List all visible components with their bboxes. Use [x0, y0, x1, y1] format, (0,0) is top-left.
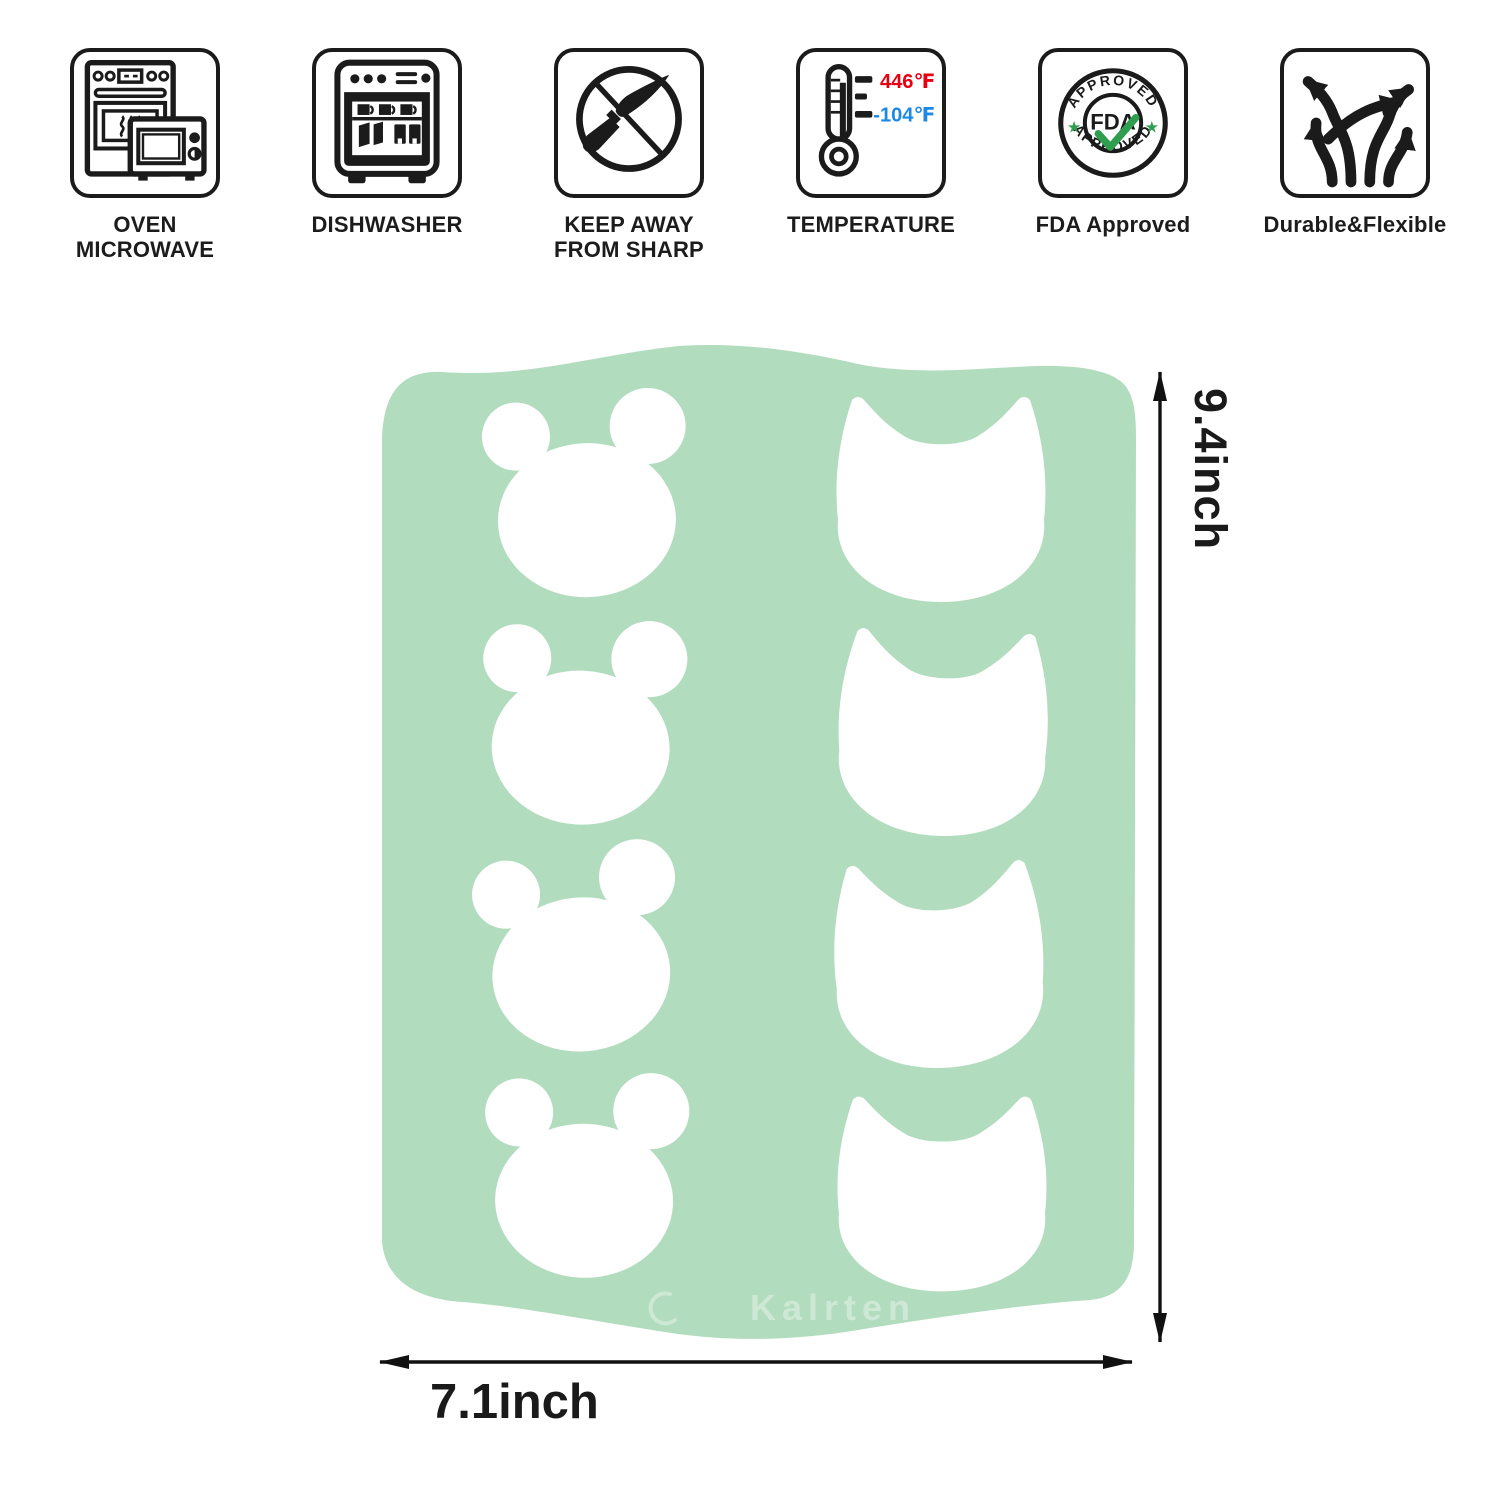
height-dimension-label: 9.4inch [1184, 388, 1236, 550]
feature-label-keep-away-sharp: KEEP AWAY FROM SHARP [504, 212, 754, 262]
oven-microwave-icon [78, 56, 212, 190]
width-dimension-label: 7.1inch [430, 1374, 599, 1430]
fda-badge-icon-box: APPROVED APPROVED ★ ★ FDA [1038, 48, 1188, 198]
svg-text:APPROVED: APPROVED [1064, 72, 1163, 111]
feature-label-oven-microwave: OVEN MICROWAVE [20, 212, 270, 262]
mat-watermark-text: Kalrten [750, 1287, 916, 1328]
flexible-arrows-icon-box [1280, 48, 1430, 198]
feature-keep-away-sharp: KEEP AWAY FROM SHARP [550, 48, 708, 262]
thermometer-icon-box: 446℉ -104℉ [796, 48, 946, 198]
feature-oven-microwave: OVEN MICROWAVE [66, 48, 224, 262]
feature-strip: OVEN MICROWAVE [0, 48, 1500, 262]
product-infographic: OVEN MICROWAVE [0, 0, 1500, 1500]
feature-fda-approved: APPROVED APPROVED ★ ★ FDA FDA Approved [1034, 48, 1192, 262]
feature-label-durable-flexible: Durable&Flexible [1230, 212, 1480, 237]
feature-durable-flexible: Durable&Flexible [1276, 48, 1434, 262]
feature-label-temperature: TEMPERATURE [746, 212, 996, 237]
dishwasher-icon-box [312, 48, 462, 198]
silicone-mat: Kalrten [378, 342, 1138, 1342]
feature-dishwasher: DISHWASHER [308, 48, 466, 262]
temp-high-value: 446℉ [880, 71, 935, 93]
no-knife-icon [562, 56, 696, 190]
fda-arched-text-top: APPROVED [1064, 72, 1163, 111]
fda-star-left: ★ [1067, 118, 1081, 136]
flexible-arrows-icon [1288, 56, 1422, 190]
fda-star-right: ★ [1145, 118, 1159, 136]
feature-label-dishwasher: DISHWASHER [262, 212, 512, 237]
oven-microwave-icon-box [70, 48, 220, 198]
feature-label-fda-approved: FDA Approved [988, 212, 1238, 237]
thermometer-icon: 446℉ -104℉ [804, 56, 938, 190]
temp-low-value: -104℉ [873, 105, 935, 127]
no-knife-icon-box [554, 48, 704, 198]
feature-temperature: 446℉ -104℉ TEMPERATURE [792, 48, 950, 262]
fda-approved-icon: APPROVED APPROVED ★ ★ FDA [1046, 56, 1180, 190]
dishwasher-icon [320, 56, 454, 190]
